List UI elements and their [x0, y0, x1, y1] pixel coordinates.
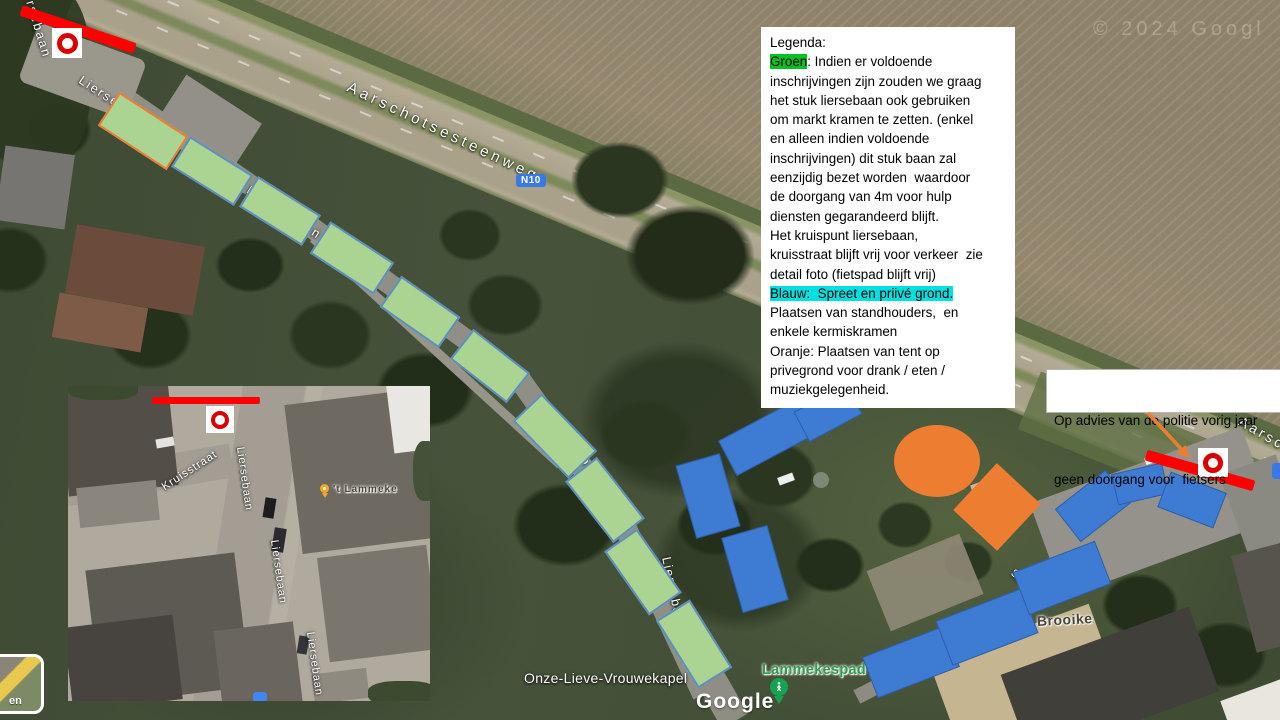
- legend-line: Plaatsen van standhouders, en: [770, 303, 1007, 322]
- inset-poi-label-t-lammeke: 't Lammeke: [333, 484, 398, 495]
- legend-box: Legenda:Groen: Indien er voldoendeinschr…: [761, 27, 1015, 408]
- inset-building: [317, 545, 430, 663]
- legend-line: privegrond voor drank / eten /: [770, 361, 1007, 380]
- legend-line: Blauw: Spreet en priivé grond.: [770, 284, 1007, 303]
- legend-line: enkele kermiskramen: [770, 322, 1007, 341]
- market-stall-zone-green-10: [656, 599, 732, 688]
- road-closure-sign-icon: [52, 28, 82, 58]
- legend-line: om markt kramen te zetten. (enkel: [770, 110, 1007, 129]
- legend-line: muziekgelegenheid.: [770, 380, 1007, 399]
- inset-road-closure-line: [152, 397, 260, 404]
- legend-line: inschrijvingen zijn zouden we graag: [770, 72, 1007, 91]
- road-closure-sign-icon: [206, 406, 234, 433]
- legend-line: het stuk liersebaan ook gebruiken: [770, 91, 1007, 110]
- market-stall-zone-green-9: [604, 529, 682, 616]
- market-stall-zone-green-6: [450, 329, 530, 403]
- poi-pin-icon[interactable]: [320, 484, 329, 498]
- inset-building: [213, 621, 302, 701]
- legend-line: en alleen indien voldoende: [770, 129, 1007, 148]
- inset-building: [76, 480, 160, 528]
- inset-tree-cluster: [368, 681, 430, 701]
- market-stall-zone-green-3: [239, 176, 321, 246]
- map-canvas: rsebaan Liersebaan Liersebaan Liersebaan…: [0, 0, 1280, 720]
- inset-building: [68, 615, 183, 701]
- inset-map-pin-partial: [253, 692, 267, 701]
- legend-line: detail foto (fietspad blijft vrij): [770, 265, 1007, 284]
- stall-zone-blue-4: [721, 525, 789, 613]
- tent-zone-orange-ellipse: [894, 425, 980, 497]
- layers-button-label: en: [9, 695, 22, 707]
- note-arrow-icon: [1140, 407, 1204, 465]
- legend-text: Legenda:Groen: Indien er voldoendeinschr…: [770, 33, 1007, 400]
- legend-line: Het kruispunt liersebaan,: [770, 226, 1007, 245]
- inset-tree-cluster: [68, 386, 138, 400]
- market-stall-zone-green-4: [310, 221, 394, 294]
- legend-line: Groen: Indien er voldoende: [770, 52, 1007, 71]
- inset-street-label-liersebaan: Liersebaan: [304, 631, 325, 696]
- legend-line: de doorgang van 4m voor hulp: [770, 187, 1007, 206]
- legend-line: diensten gegarandeerd blijft.: [770, 207, 1007, 226]
- legend-line: eenzijdig bezet worden waardoor: [770, 168, 1007, 187]
- police-note-line2: geen doorgang voor fietsers: [1054, 470, 1280, 490]
- market-stall-zone-green-2: [171, 136, 253, 206]
- stall-zone-blue-10: [1013, 541, 1112, 615]
- legend-line: Oranje: Plaatsen van tent op: [770, 342, 1007, 361]
- legend-line: inschrijvingen) dit stuk baan zal: [770, 149, 1007, 168]
- detail-inset-map: Kruisstraat Liersebaan Liersebaan Lierse…: [68, 386, 430, 701]
- market-stall-zone-green-5: [380, 276, 461, 348]
- legend-line: kruisstraat blijft vrij voor verkeer zie: [770, 245, 1007, 264]
- inset-tree-cluster: [413, 441, 430, 501]
- layers-button[interactable]: en: [0, 654, 44, 714]
- legend-line: Legenda:: [770, 33, 1007, 52]
